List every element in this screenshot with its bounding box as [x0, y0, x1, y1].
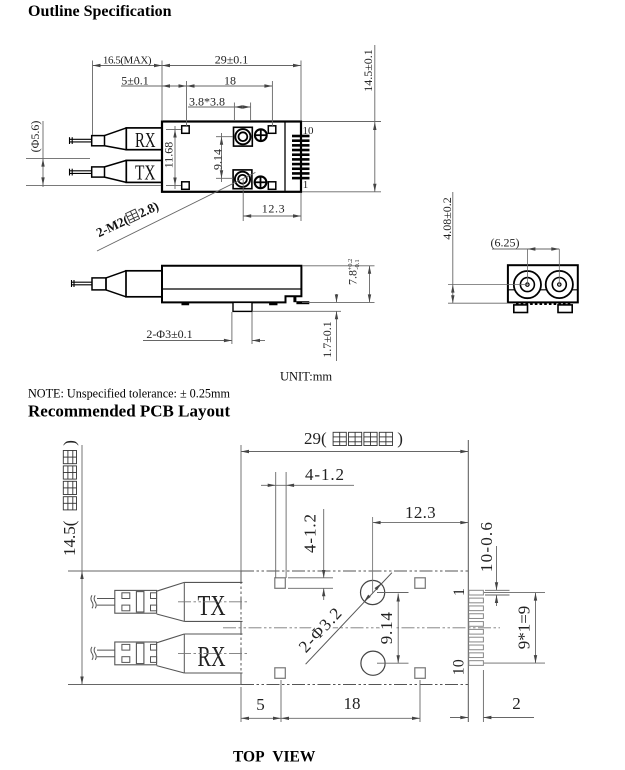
svg-text:1.7±0.1: 1.7±0.1 — [320, 321, 334, 358]
svg-text:18: 18 — [344, 694, 361, 713]
svg-text:10-0.6: 10-0.6 — [477, 521, 496, 572]
svg-text:TOP VIEW: TOP VIEW — [233, 749, 316, 766]
svg-text:14.5±0.1: 14.5±0.1 — [361, 49, 375, 92]
svg-text:-0.1: -0.1 — [354, 259, 361, 269]
svg-text:16.5(MAX): 16.5(MAX) — [103, 55, 152, 67]
svg-text:9.14: 9.14 — [210, 149, 224, 170]
svg-text:10: 10 — [303, 125, 315, 137]
svg-text:18: 18 — [224, 73, 236, 87]
svg-text:9.14: 9.14 — [377, 611, 396, 644]
svg-text:7.8: 7.8 — [346, 270, 360, 285]
svg-text:4.08±0.2: 4.08±0.2 — [440, 197, 454, 240]
svg-text:RX: RX — [198, 642, 226, 673]
svg-text:RX: RX — [135, 128, 156, 152]
svg-text:TX: TX — [198, 591, 226, 622]
svg-text:12.3: 12.3 — [262, 202, 285, 216]
svg-text:): ) — [60, 440, 79, 446]
svg-text:11.68: 11.68 — [161, 142, 175, 169]
svg-text:10: 10 — [451, 659, 468, 675]
svg-text:Outline Specification: Outline Specification — [28, 3, 172, 20]
svg-text:3.8*3.8: 3.8*3.8 — [189, 94, 225, 108]
svg-text:1: 1 — [303, 179, 309, 191]
svg-text:5: 5 — [256, 695, 265, 714]
svg-text:1: 1 — [451, 588, 468, 596]
svg-text:NOTE: Unspecified tolerance: ±: NOTE: Unspecified tolerance: ± 0.25mm — [28, 387, 230, 401]
svg-text:9*1=9: 9*1=9 — [514, 606, 533, 650]
svg-text:14.5(: 14.5( — [60, 520, 79, 556]
svg-text:UNIT:mm: UNIT:mm — [280, 370, 332, 384]
svg-text:29(: 29( — [304, 429, 327, 448]
svg-text:TX: TX — [135, 161, 156, 185]
svg-text:2-Φ3±0.1: 2-Φ3±0.1 — [146, 327, 192, 341]
svg-text:(6.25): (6.25) — [491, 236, 520, 250]
svg-text:4-1.2: 4-1.2 — [300, 513, 319, 553]
svg-text:5±0.1: 5±0.1 — [121, 73, 149, 87]
svg-text:(Φ5.6): (Φ5.6) — [28, 121, 42, 153]
svg-text:12.3: 12.3 — [405, 503, 436, 522]
svg-text:+0.2: +0.2 — [347, 259, 354, 271]
svg-text:2: 2 — [512, 694, 521, 713]
svg-text:Recommended PCB Layout: Recommended PCB Layout — [28, 402, 230, 421]
svg-text:29±0.1: 29±0.1 — [215, 53, 249, 67]
svg-text:): ) — [397, 429, 403, 448]
svg-text:4-1.2: 4-1.2 — [305, 465, 345, 484]
